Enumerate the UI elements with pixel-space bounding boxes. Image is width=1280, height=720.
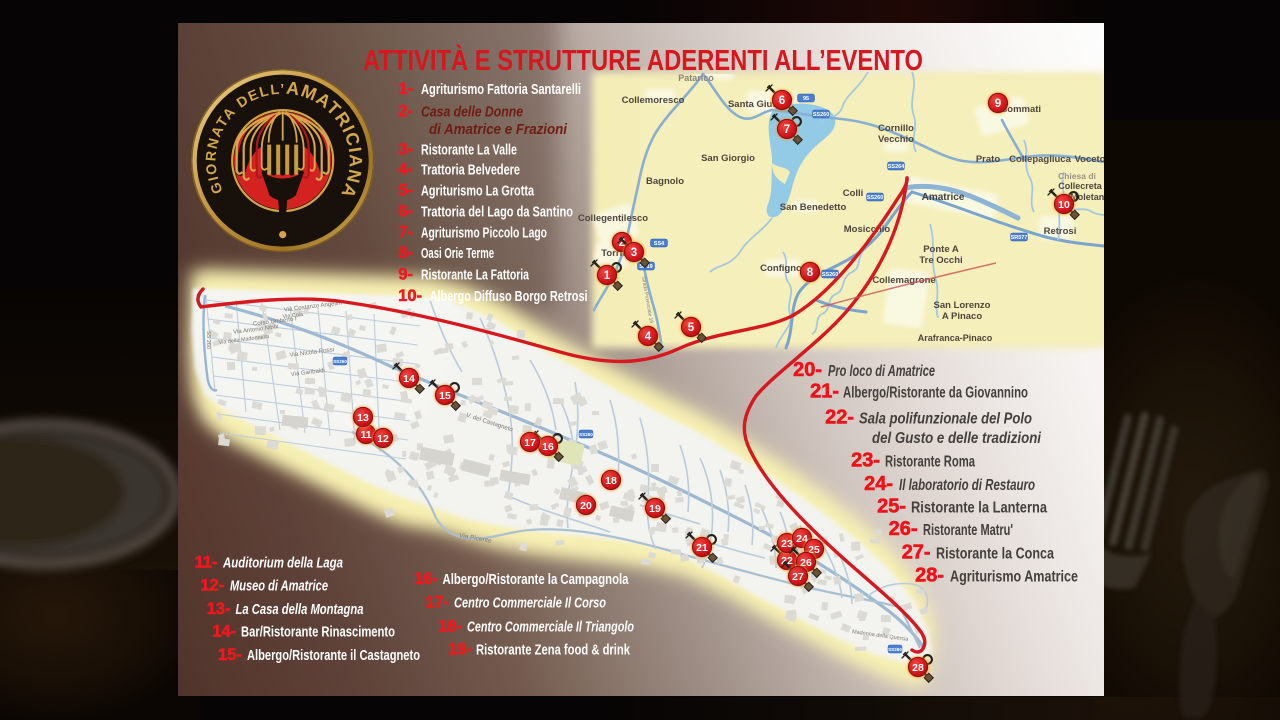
svg-text:Museo di Amatrice: Museo di Amatrice [230,578,328,595]
svg-text:9: 9 [995,98,1001,110]
svg-text:Mosicchio: Mosicchio [844,224,891,235]
svg-text:Colli: Colli [843,188,864,199]
svg-text:Trattoria del Lago da Santino: Trattoria del Lago da Santino [421,204,573,221]
svg-text:Albergo Diffuso Borgo Retrosi: Albergo Diffuso Borgo Retrosi [430,288,588,305]
svg-text:27-: 27- [902,542,931,564]
svg-text:Ponte A: Ponte A [923,244,959,255]
svg-text:San Lorenzo: San Lorenzo [933,300,990,311]
svg-text:25-: 25- [877,496,906,518]
svg-text:Ristorante la Lanterna: Ristorante la Lanterna [911,500,1047,517]
svg-text:San Giorgio: San Giorgio [701,153,755,164]
svg-text:16-: 16- [414,570,438,588]
svg-text:Bar/Ristorante Rinascimento: Bar/Ristorante Rinascimento [241,624,395,641]
svg-text:ATTIVITÀ E STRUTTURE ADERENTI: ATTIVITÀ E STRUTTURE ADERENTI ALL’EVENTO [363,43,923,77]
svg-text:SS4: SS4 [654,241,665,247]
svg-text:La Casa della Montagna: La Casa della Montagna [236,601,364,618]
svg-text:13: 13 [357,412,369,424]
svg-text:26-: 26- [889,518,918,540]
svg-text:Auditorium della Laga: Auditorium della Laga [222,555,343,572]
svg-text:SS260: SS260 [867,195,884,201]
svg-text:14: 14 [403,373,415,385]
svg-text:Collemoresco: Collemoresco [622,95,685,106]
svg-text:Agriturismo La Grotta: Agriturismo La Grotta [421,183,534,200]
svg-text:Casa delle Donne: Casa delle Donne [421,104,523,121]
svg-text:10: 10 [1058,199,1070,211]
svg-text:21: 21 [696,542,708,554]
svg-text:Voceto: Voceto [1075,154,1106,165]
svg-text:2-: 2- [398,103,413,121]
svg-text:12: 12 [377,433,389,445]
svg-text:22-: 22- [825,407,854,429]
svg-text:17-: 17- [425,594,449,612]
svg-text:SS260: SS260 [333,359,347,364]
svg-text:17: 17 [524,437,536,449]
svg-text:Albergo/Ristorante da Giovanni: Albergo/Ristorante da Giovannino [843,385,1028,402]
svg-text:Bagnolo: Bagnolo [646,176,684,187]
svg-text:Albergo/Ristorante la Campagno: Albergo/Ristorante la Campagnola [443,571,629,588]
svg-text:SS260: SS260 [813,112,830,118]
svg-text:5-: 5- [398,182,413,200]
svg-text:4-: 4- [398,161,413,179]
svg-text:Agriturismo Fattoria Santarell: Agriturismo Fattoria Santarelli [421,81,581,98]
svg-text:Agriturismo Amatrice: Agriturismo Amatrice [950,569,1078,586]
svg-text:A Pinaco: A Pinaco [942,311,982,322]
svg-text:Ristorante Roma: Ristorante Roma [885,454,975,471]
svg-text:San Benedetto: San Benedetto [780,202,847,213]
svg-text:21-: 21- [810,381,839,403]
svg-text:9-: 9- [398,265,413,283]
svg-text:15-: 15- [218,646,242,664]
svg-text:11: 11 [360,429,371,441]
svg-text:Centro Commerciale Il Triangol: Centro Commerciale Il Triangolo [467,618,634,635]
svg-text:Ristorante Zena food & drink: Ristorante Zena food & drink [476,642,630,659]
svg-text:Albergo/Ristorante il Castagne: Albergo/Ristorante il Castagneto [247,647,420,664]
svg-text:20: 20 [580,500,592,512]
svg-text:Ristorante Matru': Ristorante Matru' [923,522,1013,539]
svg-text:28-: 28- [915,565,944,587]
svg-text:SS260: SS260 [579,432,593,437]
svg-text:3: 3 [631,247,637,259]
svg-text:6-: 6- [398,203,413,221]
svg-text:12-: 12- [200,577,224,595]
svg-text:Collepagliuca: Collepagliuca [1009,154,1071,165]
svg-text:del Gusto e delle tradizioni: del Gusto e delle tradizioni [872,430,1042,447]
svg-text:Centro Commerciale Il Corso: Centro Commerciale Il Corso [454,595,606,612]
svg-text:11-: 11- [195,554,218,572]
svg-text:Cornillo: Cornillo [878,123,914,134]
svg-text:Agriturismo Piccolo Lago: Agriturismo Piccolo Lago [421,225,547,242]
svg-text:95: 95 [803,96,809,102]
svg-text:Ristorante La Valle: Ristorante La Valle [421,142,517,159]
svg-text:7: 7 [784,124,790,136]
svg-text:16: 16 [542,441,554,453]
svg-text:23: 23 [781,538,793,550]
svg-text:18: 18 [605,475,617,487]
svg-text:6: 6 [779,95,785,107]
svg-text:8-: 8- [398,244,413,262]
svg-text:Collegentilesco: Collegentilesco [578,213,648,224]
svg-text:Retrosi: Retrosi [1044,226,1077,237]
svg-text:Oasi Orie Terme: Oasi Orie Terme [421,245,494,262]
svg-text:10-: 10- [398,287,422,305]
svg-text:Sala polifunzionale del Polo: Sala polifunzionale del Polo [859,411,1032,428]
svg-text:SS264: SS264 [888,164,905,170]
svg-text:Collecreta: Collecreta [1058,181,1103,191]
svg-text:18-: 18- [438,617,462,635]
svg-text:27: 27 [792,571,804,583]
svg-text:Ristorante la Conca: Ristorante la Conca [936,546,1054,563]
svg-text:28: 28 [912,662,924,674]
svg-text:Collemagrone: Collemagrone [872,275,935,286]
svg-text:19: 19 [649,503,661,515]
svg-text:SS260: SS260 [888,647,902,652]
svg-text:13-: 13- [207,600,231,618]
svg-text:Chiesa di: Chiesa di [1058,171,1096,181]
svg-text:8: 8 [807,267,814,279]
svg-text:15: 15 [439,390,451,402]
svg-text:Prato: Prato [976,154,1000,165]
svg-text:5: 5 [688,322,695,334]
svg-text:SS 260: SS 260 [205,331,211,349]
svg-text:SS260: SS260 [822,272,839,278]
svg-text:14-: 14- [212,623,236,641]
svg-text:di Amatrice e Frazioni: di Amatrice e Frazioni [429,121,568,138]
svg-text:24-: 24- [864,473,893,495]
svg-text:1-: 1- [398,80,413,98]
svg-text:7-: 7- [398,224,413,242]
svg-text:4: 4 [645,331,652,343]
svg-text:Pro loco di Amatrice: Pro loco di Amatrice [828,363,935,380]
svg-text:23-: 23- [851,450,880,472]
svg-text:Arafranca-Pinaco: Arafranca-Pinaco [918,333,993,343]
svg-text:1: 1 [604,270,611,282]
svg-text:Amatrice: Amatrice [922,192,965,203]
svg-text:19-: 19- [448,641,472,659]
svg-text:Configno: Configno [760,263,802,274]
svg-text:Tre Occhi: Tre Occhi [919,255,962,266]
svg-text:SR577: SR577 [1011,235,1028,241]
svg-text:Trattoria Belvedere: Trattoria Belvedere [421,162,520,179]
svg-text:3-: 3- [398,141,413,159]
svg-text:Il laboratorio di Restauro: Il laboratorio di Restauro [899,477,1035,494]
svg-text:Ristorante La Fattoria: Ristorante La Fattoria [421,266,529,283]
svg-text:20-: 20- [793,359,822,381]
svg-text:Vecchio: Vecchio [878,134,914,145]
